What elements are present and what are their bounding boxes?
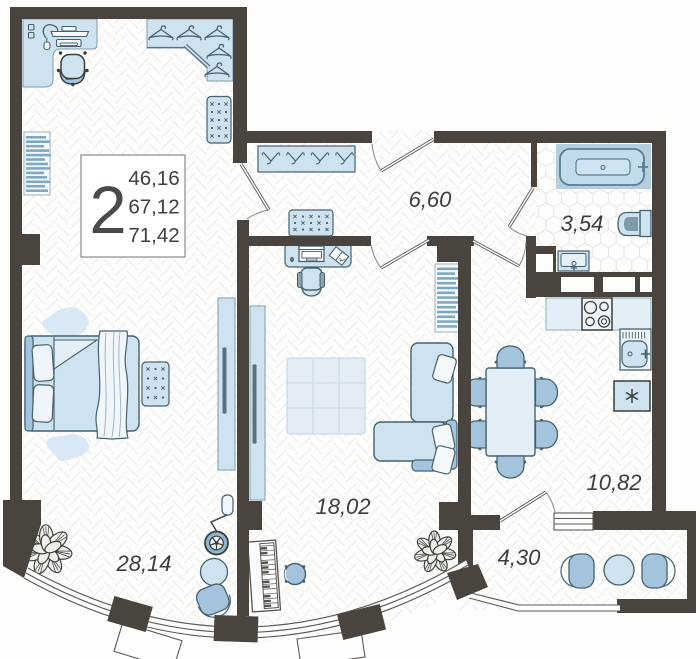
svg-text:67,12: 67,12 — [128, 196, 179, 219]
svg-text:4,30: 4,30 — [498, 545, 542, 570]
svg-text:71,42: 71,42 — [128, 224, 179, 247]
svg-text:6,60: 6,60 — [409, 187, 453, 212]
svg-text:3,54: 3,54 — [561, 211, 604, 236]
svg-text:28,14: 28,14 — [115, 551, 171, 576]
svg-text:10,82: 10,82 — [586, 470, 641, 495]
svg-text:18,02: 18,02 — [315, 494, 370, 519]
svg-text:2: 2 — [89, 173, 126, 248]
svg-text:46,16: 46,16 — [128, 167, 179, 190]
